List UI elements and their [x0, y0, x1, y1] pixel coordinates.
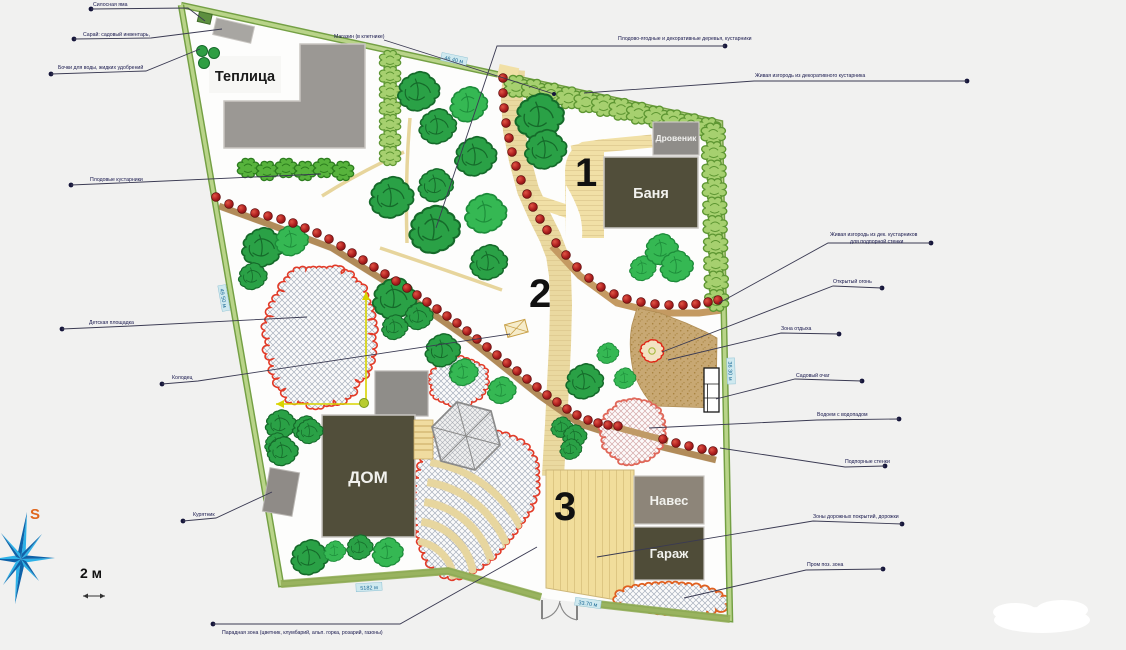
svg-text:Парадная зона (цветник, клумба: Парадная зона (цветник, клумбарий, альп.…	[222, 629, 383, 636]
svg-text:Плодово-ягодные и декоративные: Плодово-ягодные и декоративные деревья, …	[618, 36, 752, 42]
svg-text:Теплица: Теплица	[215, 69, 276, 85]
svg-text:Гараж: Гараж	[650, 546, 690, 561]
svg-text:36 30 м: 36 30 м	[726, 361, 733, 380]
svg-text:1: 1	[575, 151, 597, 195]
svg-text:Живая изгородь из декоративног: Живая изгородь из декоративного кустарни…	[755, 73, 865, 79]
svg-text:Баня: Баня	[633, 186, 669, 202]
svg-text:Колодец: Колодец	[172, 375, 193, 381]
svg-text:Зоны дорожных покрытий, дорожк: Зоны дорожных покрытий, дорожки	[813, 513, 899, 520]
svg-text:Подпорные стенки: Подпорные стенки	[845, 459, 890, 465]
svg-text:5182 м: 5182 м	[360, 585, 378, 592]
svg-text:Пром поз. зона: Пром поз. зона	[807, 562, 843, 568]
svg-text:Бочки для воды, жидких удобрен: Бочки для воды, жидких удобрений	[58, 64, 143, 71]
svg-text:Живая изгородь из дек. кустар: Живая изгородь из дек. кустарников	[830, 232, 918, 238]
svg-text:Открытый огонь: Открытый огонь	[833, 278, 872, 285]
svg-text:ДОМ: ДОМ	[348, 468, 388, 487]
svg-text:Садовый очаг: Садовый очаг	[796, 372, 830, 379]
svg-text:3: 3	[554, 485, 576, 529]
svg-text:Плодовые кустарники: Плодовые кустарники	[90, 177, 143, 183]
svg-text:Магазин (в клетнике): Магазин (в клетнике)	[334, 34, 385, 40]
svg-text:Навес: Навес	[650, 493, 689, 508]
svg-text:Зона отдыха: Зона отдыха	[781, 326, 811, 332]
svg-text:для подпорной стенки: для подпорной стенки	[850, 238, 904, 245]
svg-text:Детская площадка: Детская площадка	[89, 320, 134, 326]
svg-text:Силосная яма: Силосная яма	[93, 2, 128, 8]
svg-text:Курятник: Курятник	[193, 512, 215, 518]
svg-text:S: S	[30, 506, 40, 523]
svg-text:2: 2	[529, 272, 551, 316]
svg-text:2 м: 2 м	[80, 565, 102, 581]
svg-text:Сарай: садовый инвентарь,: Сарай: садовый инвентарь,	[83, 31, 150, 38]
svg-text:Водоем с водопадом: Водоем с водопадом	[817, 412, 868, 418]
svg-text:Дровеник: Дровеник	[656, 133, 698, 143]
